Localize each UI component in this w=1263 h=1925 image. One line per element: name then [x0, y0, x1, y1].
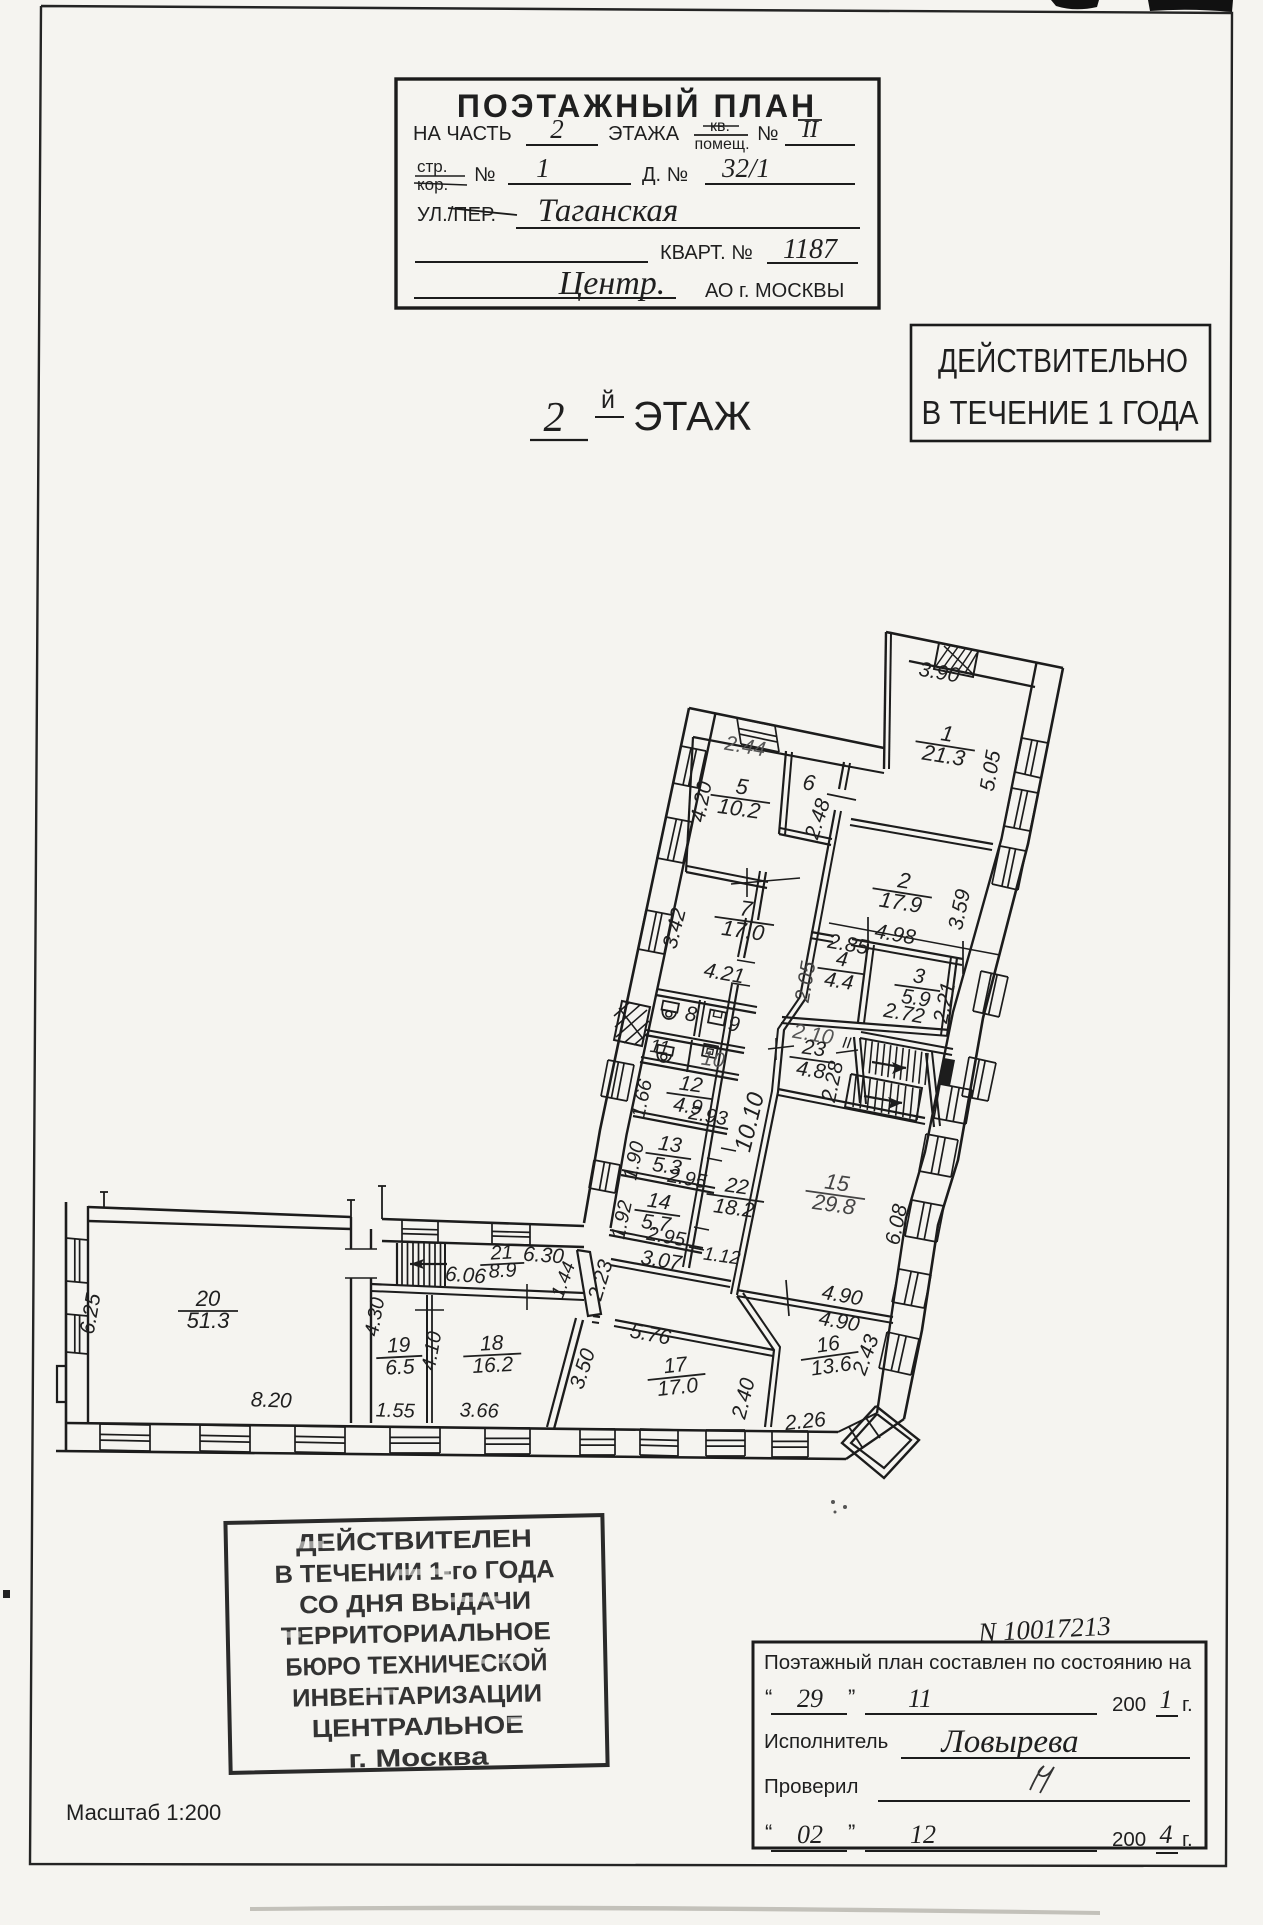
- svg-text:Д. №: Д. №: [642, 164, 688, 186]
- svg-text:51.3: 51.3: [187, 1308, 231, 1333]
- svg-text:ИНВЕНТАРИЗАЦИИ: ИНВЕНТАРИЗАЦИИ: [292, 1679, 543, 1712]
- svg-text:19: 19: [386, 1333, 411, 1357]
- svg-text:г.: г.: [1182, 1693, 1193, 1716]
- svg-text:10: 10: [700, 1047, 727, 1073]
- svg-text:8.20: 8.20: [250, 1388, 292, 1412]
- svg-text:Центр.: Центр.: [558, 265, 666, 302]
- svg-text:3.66: 3.66: [459, 1399, 500, 1422]
- svg-text:6.5: 6.5: [385, 1355, 416, 1380]
- svg-text:02: 02: [797, 1820, 823, 1849]
- svg-text:УЛ./ПЕР.: УЛ./ПЕР.: [417, 204, 496, 226]
- svg-text:ЦЕНТРАЛЬНОЕ: ЦЕНТРАЛЬНОЕ: [311, 1711, 524, 1743]
- svg-text:12: 12: [910, 1820, 936, 1849]
- svg-text:Поэтажный план составлен по со: Поэтажный план составлен по состоянию на: [764, 1651, 1192, 1674]
- svg-text:ДЕЙСТВИТЕЛЕН: ДЕЙСТВИТЕЛЕН: [296, 1523, 533, 1558]
- svg-text:17.0: 17.0: [656, 1374, 699, 1401]
- svg-text:СО ДНЯ ВЫДАЧИ: СО ДНЯ ВЫДАЧИ: [299, 1587, 532, 1620]
- svg-text:16.2: 16.2: [472, 1353, 514, 1378]
- svg-text:2: 2: [544, 395, 565, 441]
- svg-text:Таганская: Таганская: [538, 193, 679, 229]
- svg-text:помещ.: помещ.: [694, 136, 749, 153]
- svg-text:1.55: 1.55: [375, 1399, 416, 1422]
- svg-text:ЭТАЖА: ЭТАЖА: [608, 123, 680, 145]
- svg-text:НА ЧАСТЬ: НА ЧАСТЬ: [413, 123, 512, 145]
- svg-text:“: “: [765, 1685, 772, 1710]
- svg-text:ТЕРРИТОРИАЛЬНОЕ: ТЕРРИТОРИАЛЬНОЕ: [281, 1617, 552, 1651]
- svg-text:200: 200: [1112, 1693, 1146, 1716]
- svg-text:2: 2: [550, 114, 564, 144]
- svg-text:В ТЕЧЕНИЕ 1 ГОДА: В ТЕЧЕНИЕ 1 ГОДА: [922, 394, 1199, 431]
- svg-text:4.4: 4.4: [823, 968, 855, 995]
- svg-text:ПОЭТАЖНЫЙ ПЛАН: ПОЭТАЖНЫЙ ПЛАН: [457, 88, 817, 124]
- svg-text:ЭТАЖ: ЭТАЖ: [633, 393, 751, 439]
- svg-text:г. Москва: г. Москва: [348, 1742, 490, 1773]
- svg-text:29: 29: [797, 1684, 823, 1713]
- svg-text:Ловырева: Ловырева: [940, 1724, 1078, 1760]
- svg-text:32/1: 32/1: [721, 153, 770, 183]
- svg-text:8.9: 8.9: [488, 1259, 517, 1282]
- svg-text:1187: 1187: [783, 234, 838, 265]
- svg-text:1: 1: [536, 153, 550, 183]
- svg-text:1: 1: [1160, 1685, 1173, 1714]
- svg-text:4: 4: [1160, 1820, 1173, 1849]
- svg-text:АО г. МОСКВЫ: АО г. МОСКВЫ: [705, 280, 844, 302]
- svg-text:18: 18: [479, 1331, 504, 1355]
- svg-text:Масштаб 1:200: Масштаб 1:200: [66, 1800, 221, 1825]
- svg-text:”: ”: [848, 1685, 855, 1710]
- svg-text:й: й: [601, 386, 615, 414]
- svg-text:6.06: 6.06: [444, 1263, 487, 1289]
- svg-text:КВАРТ. №: КВАРТ. №: [660, 242, 753, 264]
- svg-text:2.26: 2.26: [783, 1408, 827, 1435]
- svg-text:ДЕЙСТВИТЕЛЬНО: ДЕЙСТВИТЕЛЬНО: [938, 342, 1188, 379]
- svg-text:Исполнитель: Исполнитель: [764, 1730, 888, 1753]
- svg-text:стр.: стр.: [417, 157, 447, 176]
- svg-text:11: 11: [908, 1684, 932, 1713]
- svg-text:№: №: [474, 164, 495, 186]
- svg-text:№: №: [757, 123, 778, 145]
- svg-text:11: 11: [649, 1036, 671, 1060]
- svg-text:“: “: [765, 1820, 772, 1845]
- svg-text:Проверил: Проверил: [764, 1775, 858, 1798]
- svg-text:200: 200: [1112, 1828, 1146, 1851]
- svg-text:г.: г.: [1182, 1828, 1193, 1851]
- svg-text:”: ”: [848, 1820, 855, 1845]
